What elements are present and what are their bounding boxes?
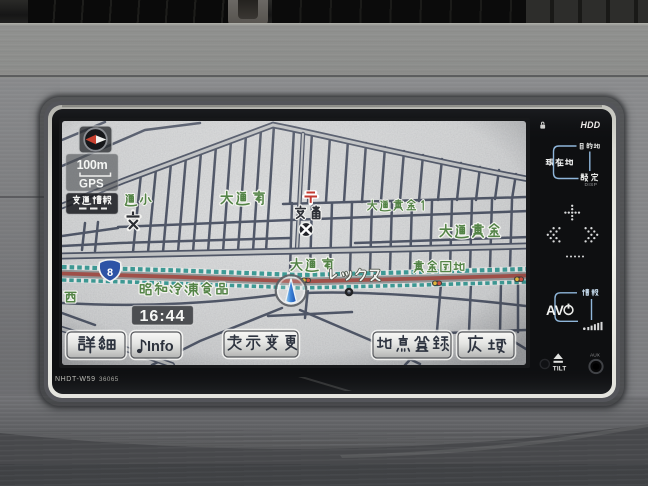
svg-text:DISP: DISP [585, 182, 598, 188]
svg-text:HDD: HDD [581, 120, 601, 130]
svg-text:16:44: 16:44 [140, 308, 186, 325]
svg-text:TILT: TILT [553, 366, 567, 373]
svg-text:AUX: AUX [590, 353, 601, 359]
svg-text:100m: 100m [77, 158, 108, 172]
svg-text:NHDT-W59: NHDT-W59 [55, 376, 96, 383]
svg-text:GPS: GPS [79, 179, 104, 191]
svg-text:AV: AV [546, 303, 564, 318]
svg-text:8: 8 [107, 267, 113, 279]
svg-text:36065: 36065 [99, 376, 119, 383]
svg-text:Info: Info [147, 339, 174, 355]
